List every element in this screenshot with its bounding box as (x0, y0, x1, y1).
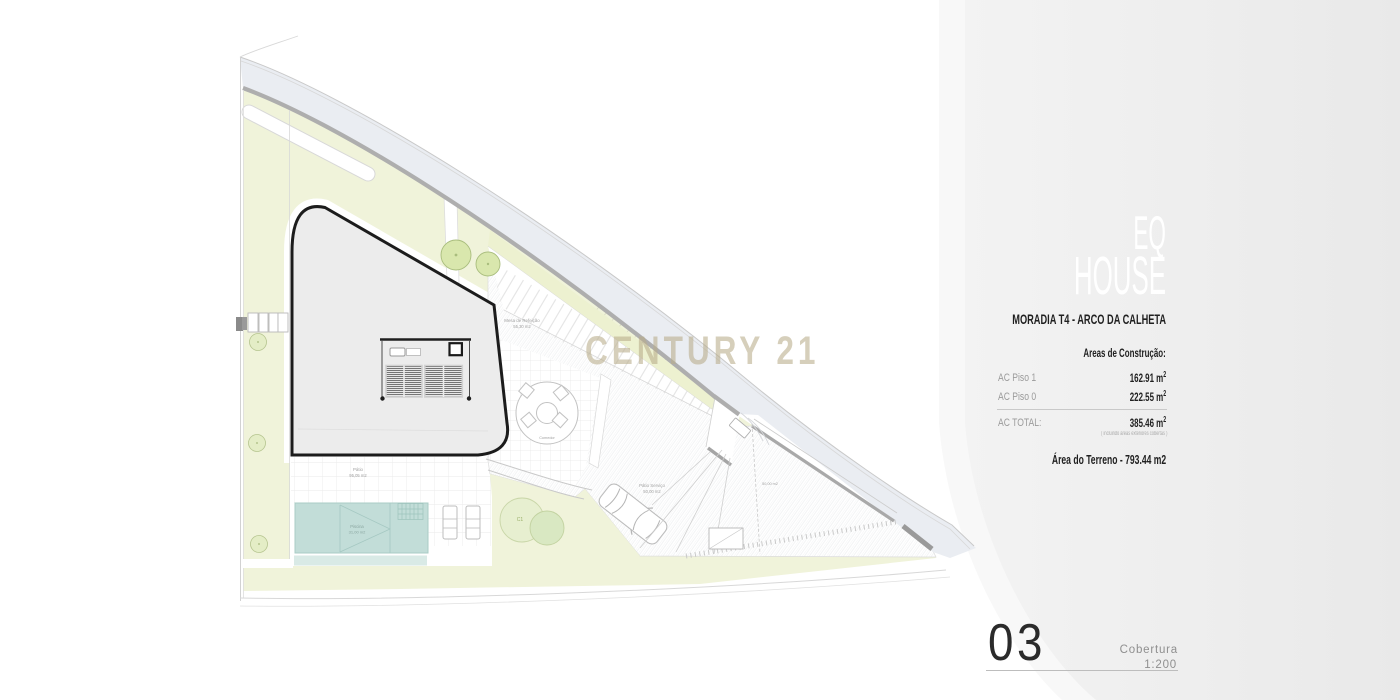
svg-text:Comedor: Comedor (539, 436, 555, 440)
svg-text:55,30 m2: 55,30 m2 (513, 324, 531, 329)
svg-text:50,00 m2: 50,00 m2 (643, 489, 661, 494)
svg-text:95,05 m2: 95,05 m2 (349, 473, 367, 478)
svg-text:31,00 m2: 31,00 m2 (349, 530, 366, 535)
svg-text:50,00 m2: 50,00 m2 (762, 482, 778, 486)
svg-text:Pátio Serviço: Pátio Serviço (639, 483, 665, 488)
svg-text:Piscina: Piscina (350, 524, 364, 529)
svg-text:C1: C1 (517, 517, 524, 523)
svg-text:Pátio: Pátio (353, 467, 364, 472)
svg-text:Mesa de Refeição: Mesa de Refeição (504, 318, 540, 323)
